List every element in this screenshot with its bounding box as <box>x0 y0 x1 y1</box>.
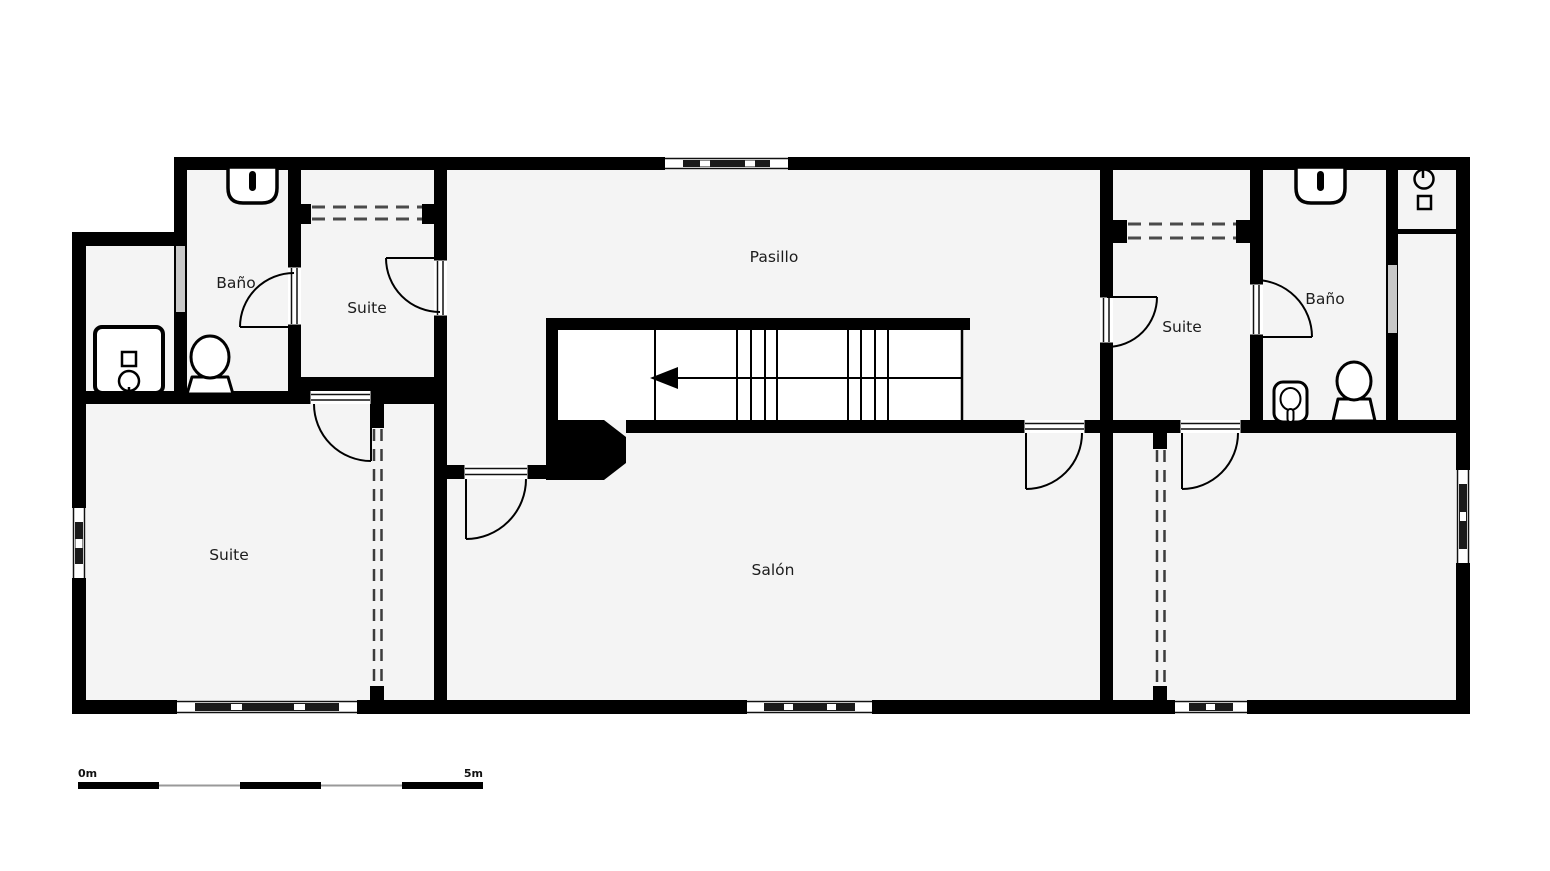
window-bottom-salon <box>747 700 872 714</box>
wall-stair-left <box>546 330 558 424</box>
glass-partition-left <box>176 246 185 312</box>
wall-stair-top <box>546 318 970 330</box>
floor-plan: Baño Suite Pasillo Suite Baño Suite Saló… <box>0 0 1550 871</box>
sink-right-icon <box>1296 167 1345 203</box>
room-label-bano-left: Baño <box>216 274 255 292</box>
door-frame-suite-top-left <box>434 258 447 318</box>
room-label-suite-top-right: Suite <box>1162 318 1202 336</box>
wall-suite-pasillo-left <box>434 157 447 258</box>
wall-top <box>176 157 1470 170</box>
window-bottom-suite <box>177 700 357 714</box>
under-stair-block <box>546 420 626 480</box>
door-frame-suite-top-right <box>1100 295 1113 345</box>
door-frame-bano-left <box>288 265 301 327</box>
door-frame-bano-right <box>1250 282 1263 337</box>
window-top <box>665 157 788 170</box>
window-right <box>1456 470 1470 563</box>
window-left <box>72 508 86 578</box>
wall-suite-bano-right <box>1250 157 1263 282</box>
scale-bar: 0m 5m <box>78 767 483 789</box>
scale-end-label: 5m <box>464 767 483 780</box>
room-label-pasillo: Pasillo <box>750 248 799 266</box>
window-bottom-right <box>1175 700 1247 714</box>
room-label-salon: Salón <box>752 561 795 579</box>
scale-start-label: 0m <box>78 767 97 780</box>
room-label-bano-right: Baño <box>1305 290 1344 308</box>
wall-left <box>72 232 86 714</box>
room-label-suite-top-left: Suite <box>347 299 387 317</box>
room-label-suite-bottom-left: Suite <box>209 546 249 564</box>
door-frame-suite-bottom-left <box>308 391 373 404</box>
toilet-right-icon <box>1333 362 1375 421</box>
wall-ext-top <box>72 232 187 246</box>
wall-right <box>1456 157 1470 714</box>
door-frame-salon-right <box>1022 420 1087 433</box>
shaft-divider <box>1398 229 1456 234</box>
toilet-left-icon <box>187 336 233 394</box>
door-frame-bottom-right-room <box>1178 420 1243 433</box>
shower-icon <box>95 327 163 395</box>
wall-pasillo-suite-right <box>1100 157 1113 295</box>
staircase <box>558 330 962 420</box>
bidet-icon <box>1274 382 1307 422</box>
glass-partition-right <box>1388 265 1397 333</box>
sink-left-icon <box>228 167 277 203</box>
door-frame-salon-left <box>462 465 530 479</box>
